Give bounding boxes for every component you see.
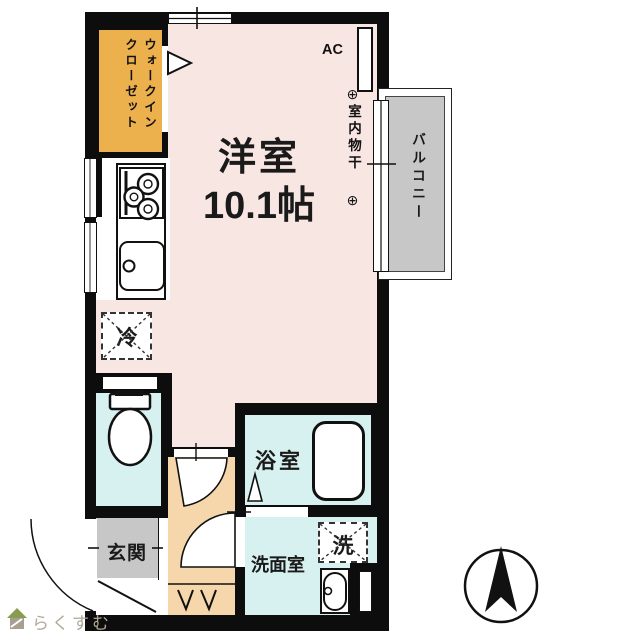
fridge-label: 冷 xyxy=(113,322,141,352)
kitchen-window-upper-frame xyxy=(96,158,102,217)
bathtub-icon xyxy=(312,421,365,501)
bath-label: 浴室 xyxy=(248,445,310,475)
ac-unit-slot xyxy=(357,27,373,92)
hallway-door-opening xyxy=(174,449,228,457)
laundry-label: 洗 xyxy=(328,530,358,560)
indoor-drying-label: 室内物干 xyxy=(341,104,363,184)
floorplan-page: ウォークイン クローゼット 冷 玄関 浴室 洗 洗面室 バルコニー AC ⊕ 室 xyxy=(0,0,632,640)
logo-text: らくすむ xyxy=(32,609,112,634)
hallway xyxy=(168,457,235,615)
entrance-step-strip xyxy=(158,518,168,580)
main-room-name: 洋室 xyxy=(199,126,319,181)
washroom-window xyxy=(359,571,372,612)
front-door-opening xyxy=(84,519,97,611)
entrance-label: 玄関 xyxy=(96,538,158,565)
washroom-label: 洗面室 xyxy=(246,551,310,577)
wic-door-opening xyxy=(162,46,168,132)
compass-icon xyxy=(465,546,537,622)
indoor-drying-symbol-bottom: ⊕ xyxy=(344,192,361,209)
kitchen-counter xyxy=(116,163,166,300)
toilet-bottom-wall xyxy=(85,506,172,518)
washbasin-icon xyxy=(320,568,350,614)
kitchen-window-lower xyxy=(84,222,97,293)
main-room-size: 10.1帖 xyxy=(189,174,329,229)
indoor-drying-symbol-top: ⊕ xyxy=(344,86,361,103)
ac-label: AC xyxy=(322,42,354,58)
balcony-window xyxy=(373,100,389,272)
washroom-door-opening xyxy=(235,512,245,567)
logo-house-icon xyxy=(7,608,27,629)
wic-label: ウォークイン クローゼット xyxy=(100,38,158,148)
toilet-door xyxy=(103,377,157,389)
top-window xyxy=(168,13,232,24)
room-toilet xyxy=(96,393,161,508)
balcony-label: バルコニー xyxy=(401,132,429,262)
